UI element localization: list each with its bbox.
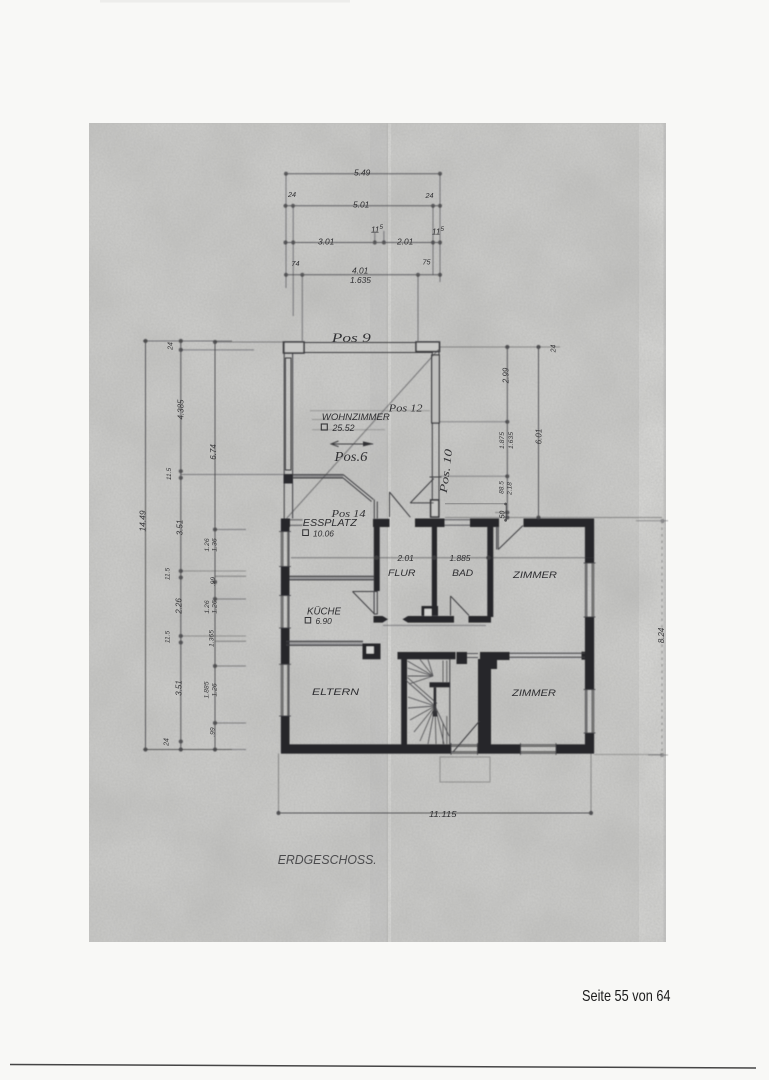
svg-text:1.635: 1.635 <box>508 432 515 449</box>
svg-text:1.36: 1.36 <box>212 538 219 551</box>
svg-text:6.74: 6.74 <box>209 444 218 460</box>
svg-text:Pos 12: Pos 12 <box>388 403 423 415</box>
svg-text:.99: .99 <box>210 577 217 587</box>
svg-text:74: 74 <box>292 259 300 268</box>
svg-text:5.49: 5.49 <box>354 167 371 177</box>
svg-text:11.5: 11.5 <box>165 630 172 643</box>
svg-text:1.26: 1.26 <box>204 538 211 551</box>
svg-text:1.26: 1.26 <box>212 600 219 613</box>
svg-text:BAD: BAD <box>452 567 473 578</box>
svg-text:5.01: 5.01 <box>353 199 369 209</box>
svg-text:3.01: 3.01 <box>318 236 334 246</box>
svg-text:Seite 55 von 64: Seite 55 von 64 <box>582 988 671 1005</box>
svg-text:.99: .99 <box>210 727 217 737</box>
svg-text:FLUR: FLUR <box>388 567 416 578</box>
svg-text:1.885: 1.885 <box>450 553 471 563</box>
svg-text:6.90: 6.90 <box>316 616 333 626</box>
svg-text:2.99: 2.99 <box>502 367 511 384</box>
svg-text:75: 75 <box>423 258 432 267</box>
svg-text:ELTERN: ELTERN <box>312 687 359 698</box>
svg-text:24: 24 <box>168 342 175 351</box>
svg-text:11: 11 <box>432 228 440 237</box>
svg-text:WOHNZIMMER: WOHNZIMMER <box>322 412 390 423</box>
svg-text:10.06: 10.06 <box>313 528 334 538</box>
svg-text:14.49: 14.49 <box>138 510 148 532</box>
svg-text:1.26: 1.26 <box>204 600 211 613</box>
svg-text:6.01: 6.01 <box>535 429 544 445</box>
svg-text:3.51: 3.51 <box>175 680 184 696</box>
svg-text:1.26: 1.26 <box>212 683 219 696</box>
svg-text:Pos.6: Pos.6 <box>333 450 367 465</box>
svg-text:1.885: 1.885 <box>204 681 211 698</box>
svg-text:2.01: 2.01 <box>397 553 414 563</box>
svg-text:1.635: 1.635 <box>350 275 371 285</box>
svg-text:Pos 9: Pos 9 <box>330 330 371 345</box>
svg-text:88.5: 88.5 <box>499 481 506 494</box>
svg-text:25.52: 25.52 <box>332 423 355 433</box>
svg-text:24: 24 <box>287 190 296 199</box>
svg-text:11.115: 11.115 <box>429 809 457 819</box>
svg-text:11.5: 11.5 <box>166 467 173 480</box>
svg-text:2.18: 2.18 <box>507 482 514 496</box>
svg-text:2.26: 2.26 <box>175 598 184 615</box>
svg-text:24: 24 <box>551 345 558 354</box>
svg-text:11.5: 11.5 <box>165 567 172 580</box>
svg-text:24: 24 <box>164 738 171 747</box>
svg-text:24: 24 <box>425 191 434 200</box>
svg-text:ERDGESCHOSS.: ERDGESCHOSS. <box>278 853 377 867</box>
svg-text:2.01: 2.01 <box>396 236 413 246</box>
svg-text:1.875: 1.875 <box>499 432 506 449</box>
svg-text:11: 11 <box>371 226 379 235</box>
svg-text:50: 50 <box>500 511 507 519</box>
svg-text:5: 5 <box>380 224 384 231</box>
svg-text:1.365: 1.365 <box>209 630 216 647</box>
svg-text:5: 5 <box>441 226 445 233</box>
svg-text:3.51: 3.51 <box>176 520 185 536</box>
svg-text:8.24: 8.24 <box>657 627 666 643</box>
svg-text:ZIMMER: ZIMMER <box>511 688 556 699</box>
svg-text:ZIMMER: ZIMMER <box>512 570 557 581</box>
svg-text:4.385: 4.385 <box>177 399 186 420</box>
